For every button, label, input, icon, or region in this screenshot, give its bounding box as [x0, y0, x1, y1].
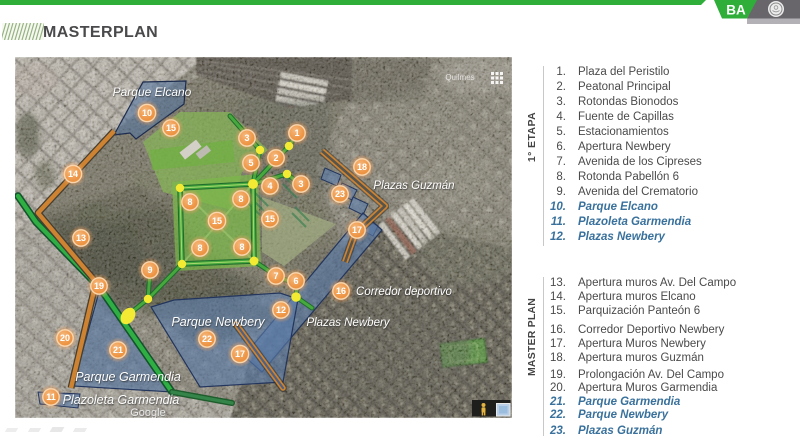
svg-text:17: 17 — [352, 225, 362, 235]
svg-text:17: 17 — [235, 349, 245, 359]
svg-text:Parque Garmendia: Parque Garmendia — [75, 370, 181, 384]
svg-text:Quilmes: Quilmes — [445, 73, 474, 82]
svg-text:15: 15 — [212, 216, 222, 226]
svg-text:10: 10 — [142, 108, 152, 118]
svg-text:4: 4 — [267, 181, 272, 191]
svg-text:3: 3 — [298, 179, 303, 189]
svg-text:15: 15 — [265, 214, 275, 224]
svg-text:Parque Elcano: Parque Elcano — [113, 85, 192, 99]
svg-text:Plazas Guzmán: Plazas Guzmán — [373, 180, 454, 192]
svg-text:1: 1 — [294, 128, 299, 138]
svg-text:21: 21 — [113, 345, 123, 355]
svg-text:7: 7 — [273, 271, 278, 281]
svg-text:Corredor deportivo: Corredor deportivo — [356, 286, 452, 298]
svg-text:12: 12 — [276, 305, 286, 315]
svg-text:3: 3 — [244, 133, 249, 143]
svg-text:11: 11 — [46, 392, 56, 402]
svg-text:15: 15 — [166, 123, 176, 133]
svg-text:13: 13 — [76, 233, 86, 243]
svg-text:Parque Newbery: Parque Newbery — [171, 315, 265, 329]
svg-text:9: 9 — [147, 265, 152, 275]
svg-text:14: 14 — [68, 169, 78, 179]
svg-text:22: 22 — [202, 334, 212, 344]
svg-text:23: 23 — [335, 189, 345, 199]
svg-text:8: 8 — [187, 197, 192, 207]
svg-text:20: 20 — [60, 333, 70, 343]
svg-text:8: 8 — [238, 194, 243, 204]
svg-text:Google: Google — [130, 407, 165, 418]
svg-text:6: 6 — [293, 276, 298, 286]
svg-text:19: 19 — [94, 281, 104, 291]
svg-text:Plazoleta Garmendia: Plazoleta Garmendia — [63, 393, 180, 407]
svg-text:8: 8 — [197, 243, 202, 253]
svg-text:8: 8 — [239, 242, 244, 252]
svg-text:2: 2 — [273, 153, 278, 163]
svg-text:5: 5 — [248, 158, 253, 168]
svg-text:Plazas Newbery: Plazas Newbery — [306, 317, 390, 329]
svg-text:18: 18 — [357, 162, 367, 172]
svg-text:16: 16 — [336, 286, 346, 296]
